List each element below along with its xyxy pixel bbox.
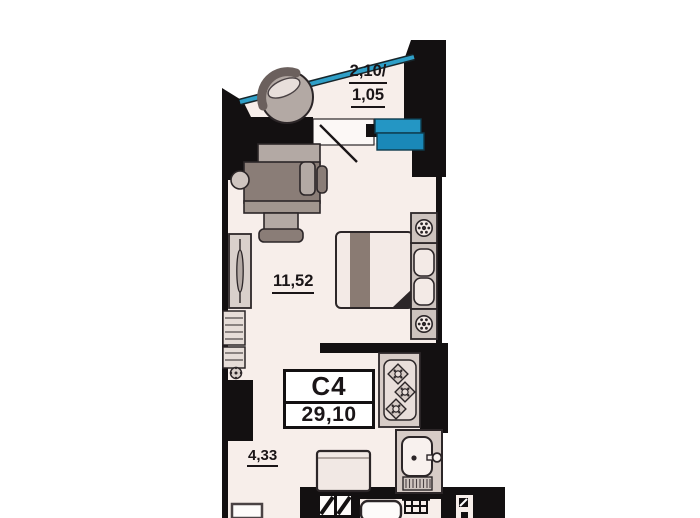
armchair-icon	[261, 71, 313, 123]
sink-icon	[396, 430, 442, 493]
bed-throw-stripe	[350, 233, 370, 307]
lamp-icon	[416, 220, 432, 236]
unit-total-area: 29,10	[286, 404, 372, 426]
balcony-area-full: 2,10/	[349, 61, 388, 84]
hall-area-label: 4,33	[247, 447, 278, 467]
pillow	[414, 249, 434, 276]
partition-wall	[320, 343, 448, 353]
balcony-area-label: 2,10/ 1,05	[336, 61, 400, 109]
plant-icon	[230, 367, 242, 379]
office-chair-icon	[300, 162, 315, 195]
pillow	[414, 278, 434, 305]
stove-icon	[379, 353, 420, 427]
unit-info-box: C4 29,10	[283, 369, 375, 429]
door-threshold	[313, 119, 374, 145]
door-leaf-icon	[337, 496, 351, 515]
living-area-label: 11,52	[272, 272, 314, 294]
chair-seat	[231, 171, 249, 189]
right-column-wall	[420, 353, 448, 433]
wardrobe-icon	[229, 234, 251, 308]
bathtub-icon	[361, 501, 401, 518]
door-leaf-icon	[320, 496, 334, 515]
balcony-bottom-wall	[222, 117, 313, 145]
floorplan: 2,10/ 1,05 11,52 4,33 C4 29,10	[0, 0, 700, 518]
nightstand-icon	[411, 309, 437, 339]
unit-code: C4	[286, 372, 372, 404]
lamp-icon	[416, 316, 432, 332]
bottom-left-fixture	[232, 504, 262, 518]
bottom-wall-mid	[441, 497, 456, 518]
bottom-wall-right	[473, 497, 505, 518]
fridge-icon	[317, 451, 370, 491]
faucet-icon	[433, 453, 442, 462]
shelving-icon	[223, 311, 245, 368]
balcony-area-reduced: 1,05	[351, 85, 385, 108]
nightstand-icon	[411, 213, 437, 243]
left-block-wall	[222, 380, 253, 441]
